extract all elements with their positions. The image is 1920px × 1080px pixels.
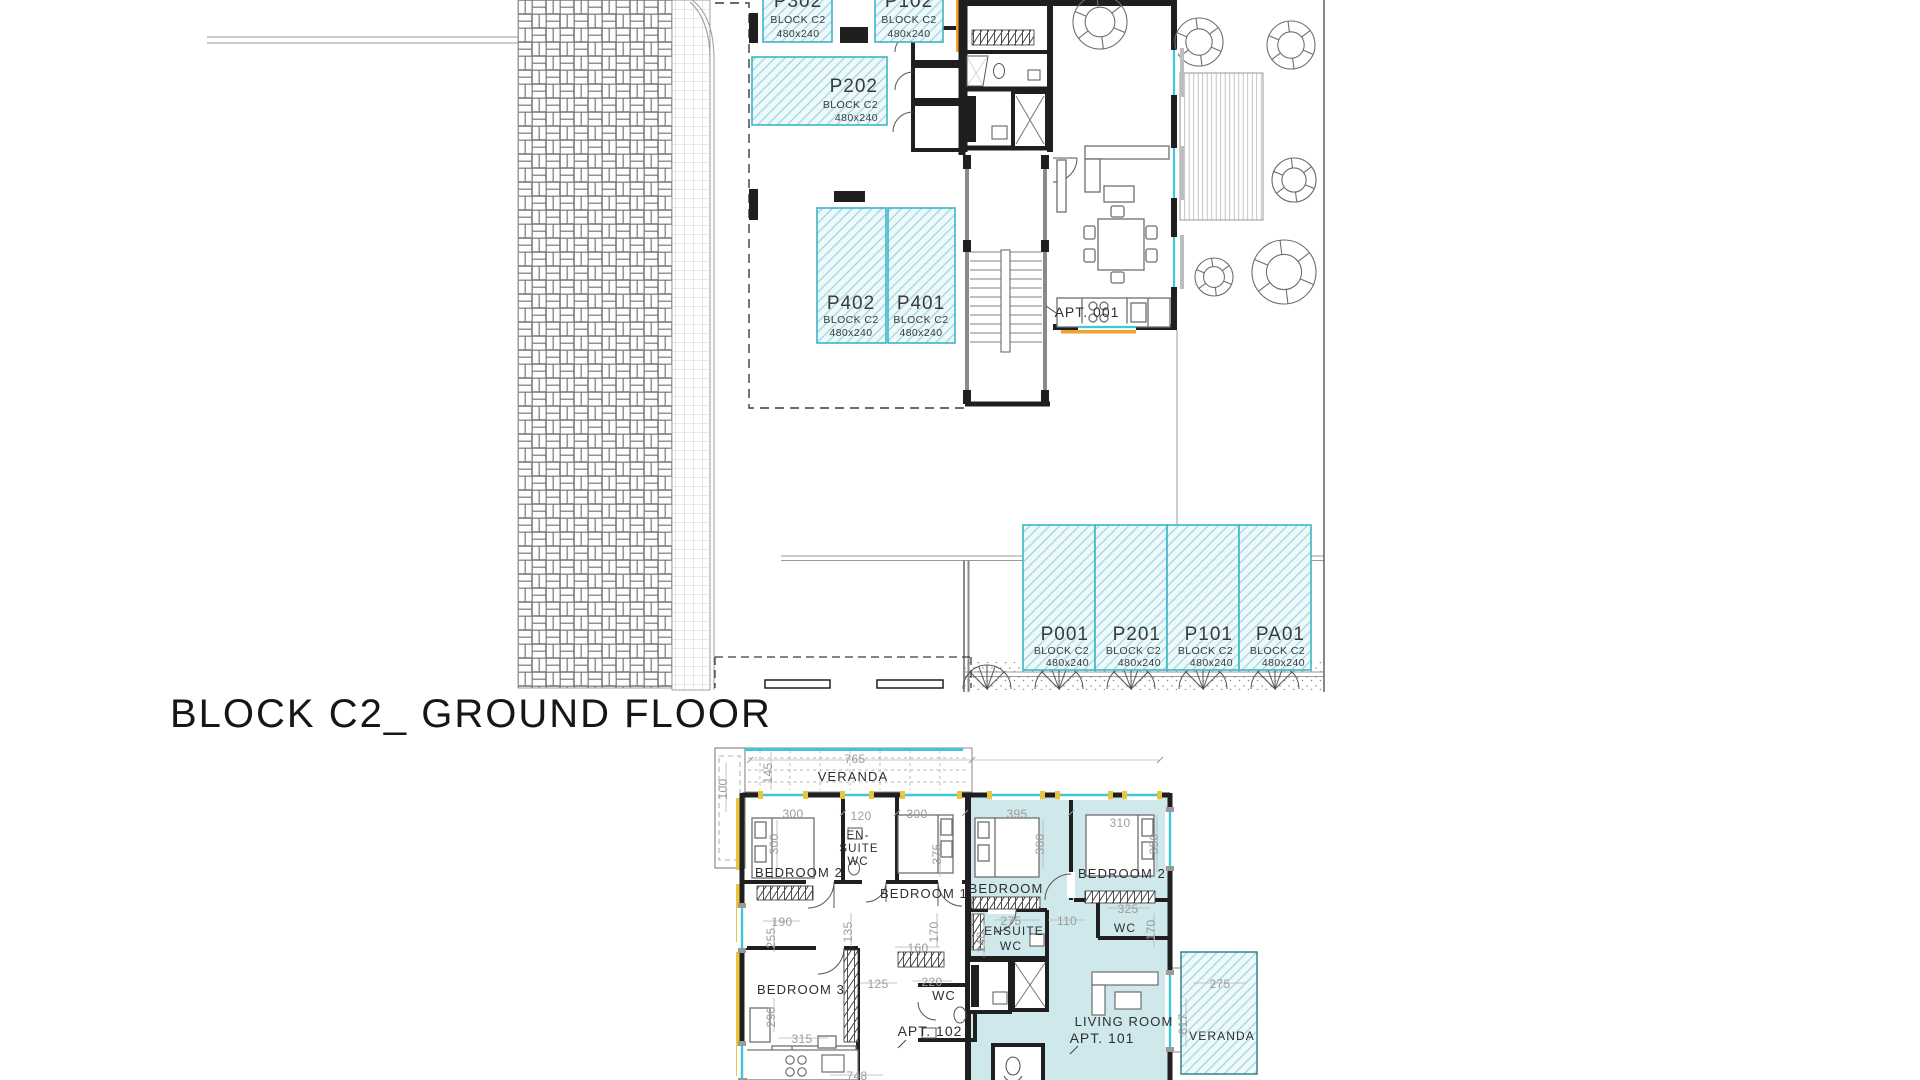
parking-stall: P402BLOCK C2480x240 [817, 208, 886, 343]
parking-stall-block: BLOCK C2 [893, 314, 948, 326]
parking-stall-size: 480x240 [899, 327, 942, 339]
floor-plan-page: { "title": "BLOCK C2_ GROUND FLOOR", "co… [0, 0, 1920, 1080]
parking-stall-block: BLOCK C2 [823, 99, 878, 111]
dining-table [1098, 219, 1144, 270]
parking-stall: P101BLOCK C2480x240 [1167, 525, 1239, 670]
veranda-right [1181, 952, 1257, 1074]
dim-label: 300 [1033, 834, 1047, 855]
dim-label: 310 [1110, 816, 1131, 830]
parking-stall-id: P401 [897, 293, 945, 314]
tree-icon [1267, 21, 1315, 69]
room-label: SUITE [839, 843, 878, 855]
parking-stall: P102BLOCK C2480x240 [875, 0, 943, 42]
parking-stall-size: 480x240 [1190, 657, 1233, 669]
parking-stall: P401BLOCK C2480x240 [888, 208, 955, 343]
parking-stall-block: BLOCK C2 [1250, 645, 1305, 657]
top-plan-windows [1170, 48, 1184, 289]
dim-label: 145 [761, 763, 775, 784]
parking-stall-block: BLOCK C2 [770, 14, 825, 26]
dim-label: 255 [764, 928, 778, 949]
tree-icon [1195, 258, 1233, 296]
parking-stall-block: BLOCK C2 [1034, 645, 1089, 657]
parking-stall: P202BLOCK C2480x240 [752, 57, 887, 125]
room-label: BEDROOM 3 [757, 982, 845, 997]
staircase [970, 250, 1042, 352]
parking-stall-size: 480x240 [1118, 657, 1161, 669]
dim-label: 300 [907, 807, 928, 821]
dim-label: 170 [927, 922, 941, 943]
parking-stall-size: 480x240 [887, 28, 930, 40]
dim-label: 140 [974, 932, 988, 953]
parking-stall-id: P302 [774, 0, 822, 12]
parking-stall-size: 480x240 [776, 28, 819, 40]
dim-label: 315 [792, 1032, 813, 1046]
dim-label: 275 [1210, 977, 1231, 991]
dim-label: 300 [767, 834, 781, 855]
dim-label: 350 [1147, 834, 1161, 855]
room-label: BEDROOM [969, 881, 1044, 896]
wc-room [993, 1045, 1043, 1080]
parking-stall-id: P201 [1113, 624, 1161, 645]
dim-label: 275 [1001, 914, 1022, 928]
parking-stall-size: 480x240 [1262, 657, 1305, 669]
tree-icon [1252, 240, 1316, 304]
tree-icon [1073, 0, 1127, 49]
toilet-icon [994, 64, 1005, 79]
parking-stall-id: P202 [830, 76, 878, 97]
dim-label: 375 [930, 844, 944, 865]
dim-label: 125 [868, 977, 889, 991]
living-room-furniture [1057, 146, 1170, 327]
plan-title: BLOCK C2_ GROUND FLOOR [170, 692, 772, 737]
apartment-label: APT. 102 [898, 1023, 963, 1039]
dim-label: 220 [922, 975, 943, 989]
parking-stall-id: P102 [885, 0, 933, 12]
dim-label: 190 [772, 915, 793, 929]
room-label: BEDROOM 1 [880, 886, 968, 901]
dim-label: 110 [1057, 914, 1077, 928]
parking-stall: PA01BLOCK C2480x240 [1239, 525, 1311, 670]
terrace-deck [1180, 73, 1263, 220]
room-label: WC [1114, 921, 1136, 935]
room-label: WC [932, 988, 956, 1003]
room-label: BEDROOM 2 [755, 865, 843, 880]
parking-stall: P001BLOCK C2480x240 [1023, 525, 1095, 670]
dim-label: 290 [764, 1007, 778, 1028]
room-label: WC [847, 856, 868, 868]
room-label: EN- [846, 830, 869, 842]
dim-label: 100 [716, 779, 730, 800]
dim-label: 395 [1007, 807, 1028, 821]
kitchen-sink [1131, 303, 1146, 322]
parking-stall: P302BLOCK C2480x240 [763, 0, 832, 42]
pavement-brick [518, 0, 672, 688]
pavement-tiles [672, 0, 710, 690]
dim-label: 765 [845, 752, 866, 766]
entrance-closets [913, 28, 962, 150]
room-label: WC [1000, 939, 1022, 953]
dim-label: 170 [1144, 920, 1158, 941]
dim-label: 300 [783, 807, 804, 821]
room-label: VERANDA [818, 769, 889, 784]
parking-stall-id: PA01 [1256, 624, 1305, 645]
room-label: LIVING ROOM [1075, 1014, 1174, 1029]
kitchen [746, 1050, 858, 1080]
parking-stall-id: P402 [827, 293, 875, 314]
floor-plan-drawing: P302BLOCK C2480x240P102BLOCK C2480x240P2… [0, 0, 1920, 1080]
dim-label: 325 [1118, 902, 1139, 916]
parking-stall: P201BLOCK C2480x240 [1095, 525, 1167, 670]
parking-stall-size: 480x240 [829, 327, 872, 339]
apartment-label: APT. 101 [1070, 1030, 1135, 1046]
apartment-label: APT. 001 [1055, 304, 1120, 320]
dim-label: 160 [908, 941, 929, 955]
parking-stall-id: P101 [1185, 624, 1233, 645]
dim-label: 748 [847, 1069, 868, 1080]
room-label: BEDROOM 2 [1078, 866, 1166, 881]
dim-label: 120 [851, 809, 872, 823]
parking-stall-block: BLOCK C2 [1178, 645, 1233, 657]
sink-icon [1028, 70, 1040, 80]
tree-icon [1272, 158, 1316, 202]
parking-stall-size: 480x240 [1046, 657, 1089, 669]
parking-stall-block: BLOCK C2 [823, 314, 878, 326]
parking-stall-id: P001 [1041, 624, 1089, 645]
dim-label: 135 [841, 922, 855, 943]
room-label: VERANDA [1189, 1029, 1255, 1043]
parking-stall-block: BLOCK C2 [881, 14, 936, 26]
parking-stall-block: BLOCK C2 [1106, 645, 1161, 657]
parking-stall-size: 480x240 [835, 112, 878, 124]
dim-label: 617 [1176, 1014, 1190, 1035]
